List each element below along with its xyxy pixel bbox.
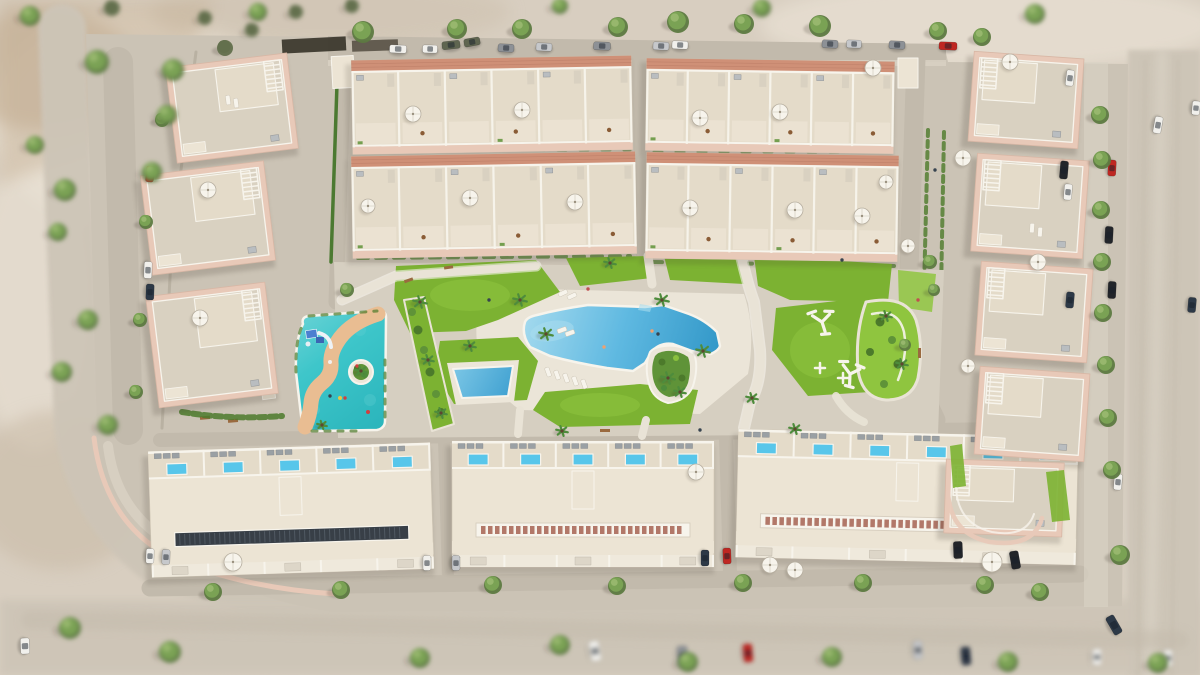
pergola-tile [579,526,584,534]
drive-wall [432,557,434,569]
ac-unit [734,74,741,79]
terrace [545,223,586,245]
pergola-tile [481,526,486,534]
shape [101,417,109,425]
shape [521,109,523,111]
stair [803,168,810,181]
shape [342,285,347,290]
car-glass [702,555,707,561]
car [1090,648,1102,666]
shape [207,189,209,191]
stair [624,166,631,179]
solar-panel [510,444,517,449]
gate-b [898,58,918,88]
pergola-tile [551,526,556,534]
solar-panel [267,450,274,455]
stair [883,76,890,89]
shape [414,326,423,335]
solar-panel [563,444,570,449]
pergola-tile [807,518,812,526]
shape [574,201,576,203]
pergola-tile [530,526,535,534]
pergola-tile [558,526,563,534]
drive-wall [376,558,378,570]
car [449,555,460,572]
plunge-pool [678,454,698,465]
shape [750,396,753,399]
stair [677,73,684,86]
stair [842,75,849,88]
car-glass [1065,189,1071,196]
shape [962,157,964,159]
car-glass [147,289,153,295]
solar-panel [914,436,921,441]
ac-unit [451,170,458,175]
planter [651,137,656,140]
pergola-tile [793,517,798,525]
terrace-row-nw [345,56,633,161]
solar-panel [923,436,930,441]
shape [885,181,887,183]
pergola-tile [488,526,493,534]
stair [620,70,627,83]
pergola-tile [919,520,924,528]
shape [678,390,681,393]
solar-panel [276,450,283,455]
pergola-tile [926,520,931,528]
terrace [733,228,768,249]
shape [779,111,781,113]
patio [158,254,181,267]
stair [719,167,726,180]
shape [681,654,689,662]
car-glass [963,652,970,659]
pergola-tile [884,519,889,527]
terrace [817,230,852,251]
ac-unit [735,168,742,173]
pergola-tile [863,519,868,527]
garage [756,548,772,556]
drive-wall [320,560,322,572]
drive-wall [791,546,793,558]
drive-wall [736,545,738,557]
pergola-tile [607,526,612,534]
shape [900,362,903,365]
shape [1001,654,1009,662]
shape [756,1,763,8]
shape [991,561,993,563]
shape [857,576,864,583]
shape [432,390,440,398]
villa-east-4 [967,366,1090,469]
garage [397,559,413,567]
shape [420,346,428,354]
shape [671,13,679,21]
car-glass [1011,556,1018,564]
car-glass [945,43,952,49]
aerial-site-render [0,0,1200,675]
shape [872,67,874,69]
garage [869,550,885,558]
person [487,298,490,301]
car-glass [395,46,402,52]
car-glass [1193,105,1199,111]
plunge-pool [813,444,833,455]
solar-panel [476,444,483,449]
stair-bulkhead [279,477,302,516]
plunge-pool [870,445,890,456]
car-glass [658,43,664,49]
play-structure [305,329,317,338]
shape [737,16,745,24]
shape [166,61,174,69]
shape [793,427,796,430]
ac-unit [1057,241,1065,248]
shape [1034,585,1041,592]
plunge-pool [468,454,488,465]
ac-unit [450,74,457,79]
villa-east-2 [963,153,1089,266]
villa-east-3 [967,261,1093,370]
planter [776,247,781,250]
stair [434,73,441,86]
shape [666,376,669,379]
plunge-pool [167,463,187,475]
plunge-pool [625,454,645,465]
pergola-tile [635,526,640,534]
person [698,428,701,431]
shape [163,643,171,651]
ac-unit [356,171,363,176]
plunge-pool [279,460,299,472]
pergola-tile [628,526,633,534]
car-glass [1061,167,1067,174]
pergola-tile [849,519,854,527]
shape [611,579,618,586]
solar-panel [581,444,588,449]
drive-wall [608,555,610,567]
shape [555,0,561,6]
car-glass [503,45,509,51]
pergola-tile [593,526,598,534]
plunge-pool [223,461,243,473]
shape [515,21,523,29]
car [420,555,431,572]
shape [198,11,209,22]
shape [335,583,342,590]
solar-panel [668,444,675,449]
stair [577,166,584,179]
shape [737,576,744,583]
shape [560,429,563,432]
ac-unit [651,73,658,78]
pergola-tile [898,520,903,528]
bench [918,348,921,358]
car-glass [541,44,547,50]
shape [1113,547,1121,555]
stair [759,74,766,87]
shape [925,257,930,262]
solar-panel [154,454,161,459]
stair [801,74,808,87]
shape [412,113,414,115]
shape [1037,261,1039,263]
sun-lounger [225,95,231,105]
shape [366,410,370,414]
shape [439,411,442,414]
secondary-pool [453,366,513,398]
shape [452,467,714,469]
car-glass [677,42,683,48]
shape [252,5,259,12]
pergola-tile [814,518,819,526]
car-glass [147,553,153,559]
south-row-west [142,443,434,585]
solar-panel [458,444,465,449]
car-glass [145,267,151,274]
shape [1151,655,1159,663]
shape [888,336,896,344]
solar-panel [172,453,179,458]
shape [418,300,421,303]
terrace [356,227,397,249]
sun-lounger [233,98,239,108]
pergola-tile [765,517,770,525]
car-glass [1115,479,1121,486]
shape [673,355,679,361]
plunge-pool [926,446,946,457]
solar-panel [229,451,236,456]
pergola-tile [649,526,654,534]
planter [498,139,503,142]
car-glass [1067,75,1073,82]
drive-wall [712,555,714,567]
solar-panel [332,448,339,453]
shape [58,181,66,189]
plunge-pool [521,454,541,465]
shape [1028,6,1036,14]
shape [218,40,231,53]
shape [699,117,701,119]
terrace [356,123,396,145]
car-glass [1094,654,1100,660]
patio [983,338,1006,350]
pergola-tile [509,526,514,534]
stair [718,73,725,86]
drive-wall [556,555,558,567]
solar-panel [615,444,622,449]
shape [426,358,429,361]
patio [979,234,1002,246]
shape [880,380,888,388]
shape [866,348,874,356]
shape [468,344,471,347]
solar-panel [810,433,817,438]
shape [642,420,646,436]
villa-east-1 [961,51,1084,156]
shape [695,471,697,473]
drive-wall [207,564,209,576]
plunge-pool [336,458,356,470]
drive-wall [905,549,907,561]
pergola-tile [586,526,591,534]
shape [55,364,63,372]
solar-panel [398,446,405,451]
shape [426,368,435,377]
car-glass [424,560,429,566]
shape [452,441,714,444]
shape [769,564,771,566]
stair [574,70,581,83]
sun-lounger [1029,223,1034,233]
shape [608,261,611,264]
shape [901,340,906,345]
person [602,345,605,348]
shape [141,217,146,222]
stair-bulkhead [572,471,594,509]
car-glass [469,39,476,45]
solar-panel [624,444,631,449]
shape [356,23,364,31]
solar-panel [686,444,693,449]
car-glass [22,643,29,649]
shape [306,342,311,347]
solar-panel [762,432,769,437]
ac-unit [251,380,260,387]
pergola-tile [600,526,605,534]
shape [884,314,887,317]
party-wall [502,441,504,467]
plunge-pool [392,456,412,468]
garage [470,557,486,565]
bench [600,429,610,432]
shape [967,365,969,367]
terrace [449,121,489,143]
pergola-tile [912,520,917,528]
shape [450,21,458,29]
shape [199,317,201,319]
ac-unit [271,135,280,142]
shape [413,650,421,658]
drive-wall [503,555,505,567]
shape [160,107,168,115]
pergola-tile [835,518,840,526]
ac-unit [819,170,826,175]
car-glass [724,553,730,559]
shape [794,569,796,571]
shape [930,285,935,290]
ac-unit [1059,444,1067,451]
scene-canvas [0,0,1200,675]
pergola-tile [544,526,549,534]
pergola-tile [786,517,791,525]
shape [1096,255,1103,262]
shape [979,578,986,585]
ac-unit [546,168,553,173]
party-wall [555,441,557,467]
solar-panel [633,444,640,449]
south-row-center [446,441,714,574]
pergola-tile [891,520,896,528]
pergola-tile [565,526,570,534]
shape [976,30,983,37]
shape [907,245,909,247]
pergola-tile [516,526,521,534]
stair [845,169,852,182]
shape [81,312,89,320]
shape [1096,153,1103,160]
terrace [814,122,849,143]
shape [487,578,494,585]
solar-panel [753,432,760,437]
solar-panel [867,435,874,440]
terrace [732,120,767,141]
shape [364,394,376,406]
terrace [451,225,492,247]
drive-wall [263,562,265,574]
solar-panel [519,444,526,449]
patio [165,386,188,399]
shape [452,541,714,553]
solar-panel [572,444,579,449]
pergola-tile [828,518,833,526]
solar-panel [932,436,939,441]
solar-panel [858,434,865,439]
pergola-tile [677,526,682,534]
car-glass [894,42,900,48]
shape [553,637,561,645]
shape [1095,203,1102,210]
shape [63,619,71,627]
ac-unit [1052,131,1060,138]
ac-unit [817,76,824,81]
solar-panel [211,452,218,457]
car-glass [163,554,169,560]
stair [527,71,534,84]
pergola-tile [842,519,847,527]
stair [388,170,395,183]
stair-bulkhead [896,463,919,501]
car-glass [1067,297,1073,304]
pergola-tile [772,517,777,525]
car-glass [915,647,922,654]
solar-panel [285,449,292,454]
terrace-row-ne [639,58,894,160]
stair [482,168,489,181]
car-glass [851,41,857,47]
shape [518,410,520,434]
car-glass [955,547,962,554]
pergola-tile [663,526,668,534]
ac-unit [1061,345,1069,352]
shape [1009,61,1011,63]
solar-panel [163,453,170,458]
person [933,168,936,171]
car-glass [1109,165,1115,171]
car-glass [1155,122,1161,129]
person [916,298,919,301]
pergola-tile [642,526,647,534]
shape [1100,358,1107,365]
planter [774,139,779,142]
person [355,364,358,367]
terrace-row-sw [345,152,637,265]
garage [172,566,188,574]
shape [1102,411,1109,418]
shape [430,279,510,311]
solar-panel [341,448,348,453]
garage [285,563,301,571]
